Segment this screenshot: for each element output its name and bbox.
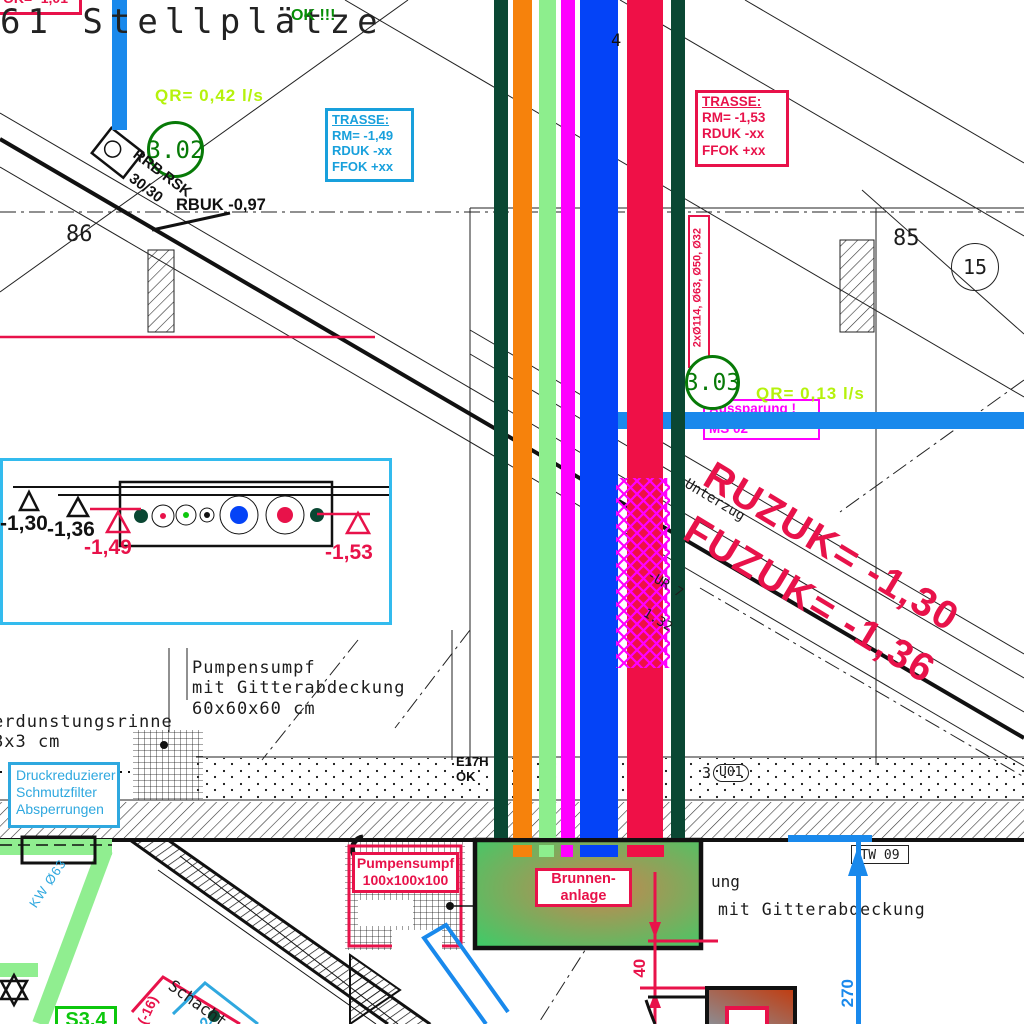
sump60-line2: mit Gitterabdeckung: [192, 678, 405, 698]
trasse-red-ffok: FFOK +xx: [702, 143, 782, 159]
rinne-line1: erdunstungsrinne: [0, 712, 173, 732]
trasse-red-rm: RM= -1,53: [702, 110, 782, 126]
ung-fragment: ung: [711, 872, 740, 891]
hatch-block-left: [148, 250, 174, 332]
pipe-callout-label: 2xØ114, Ø63, Ø50, Ø32: [691, 213, 704, 363]
brunnen-line2: anlage: [538, 888, 629, 905]
survey-lines: [0, 0, 1024, 800]
blue-arrow-up-icon: [848, 846, 868, 876]
room-id-group: 3 U01: [702, 764, 749, 782]
armaturen-line3: Absperrungen: [16, 801, 112, 818]
sump60-label: Pumpensumpf mit Gitterabdeckung 60x60x60…: [192, 658, 405, 719]
parcel-85-label: 85: [893, 226, 920, 252]
room-id: U01: [713, 764, 748, 782]
level-149-label: -1,49: [84, 535, 132, 560]
trasse-box-red: TRASSE: RM= -1,53 RDUK -xx FFOK +xx: [695, 90, 789, 167]
s34-box: S3.4: [55, 1006, 117, 1024]
room-prefix: 3: [702, 764, 711, 782]
dim-40-label: 40: [630, 950, 650, 986]
cad-plan: Aussparung ! MS 02: [0, 0, 1024, 1024]
ok-small-label: OK: [456, 769, 476, 785]
trasse-cyan-rduk: RDUK -xx: [332, 143, 407, 159]
rinne-line2: 8x3 cm: [0, 732, 173, 752]
parcel-86-label: 86: [66, 222, 93, 248]
sump100-line2: 100x100x100: [355, 872, 456, 889]
ok-note: OK !!!: [291, 6, 335, 25]
trasse-red-title: TRASSE:: [702, 94, 782, 110]
hatch-block-right: [840, 240, 874, 332]
riser-num-label: 4: [611, 31, 621, 51]
armaturen-line2: Schmutzfilter: [16, 784, 112, 801]
trasse-red-rduk: RDUK -xx: [702, 126, 782, 142]
node-15-bubble: 15: [951, 243, 999, 291]
shaft-inner-box: [727, 1008, 767, 1024]
node-303-bubble: 3.03: [685, 355, 740, 410]
level-153-label: -1,53: [325, 540, 373, 565]
sump60-line1: Pumpensumpf: [192, 658, 405, 678]
brunnen-line1: Brunnen-: [538, 871, 629, 888]
trasse-cyan-title: TRASSE:: [332, 112, 407, 128]
slab-hatch-band: [0, 802, 1024, 838]
trasse-cyan-rm: RM= -1,49: [332, 128, 407, 144]
brunnen-box: Brunnen- anlage: [535, 868, 632, 907]
rbuk-label: RBUK -0,97: [176, 196, 266, 216]
service-band-bundle: [494, 0, 685, 838]
armaturen-line1: Druckreduzierer: [16, 767, 112, 784]
pipe-callout-box: 2xØ114, Ø63, Ø50, Ø32: [688, 215, 710, 368]
level-130-label: -1,30: [0, 511, 48, 536]
sump100-box: Pumpensumpf 100x100x100: [352, 852, 459, 893]
s34-label: S3.4: [65, 1009, 106, 1024]
node-303-label: 3.03: [685, 370, 740, 396]
armaturen-box: Druckreduzierer Schmutzfilter Absperrung…: [8, 762, 120, 828]
e17h-label: E17H: [456, 754, 489, 770]
trasse-cyan-ffok: FFOK +xx: [332, 159, 407, 175]
star-symbol-icon: [1, 975, 27, 1005]
rinne-label: erdunstungsrinne 8x3 cm: [0, 712, 173, 753]
trasse-box-cyan: TRASSE: RM= -1,49 RDUK -xx FFOK +xx: [325, 108, 414, 182]
dim-270-label: 270: [838, 973, 858, 1013]
qr-top-label: QR= 0,42 l/s: [155, 86, 264, 106]
qr-mid-label: QR= 0,13 l/s: [756, 384, 865, 404]
gitter-fragment: mit Gitterabdeckung: [718, 900, 926, 920]
sump100-line1: Pumpensumpf: [355, 855, 456, 872]
node-15-label: 15: [963, 255, 987, 279]
sump60-line3: 60x60x60 cm: [192, 699, 405, 719]
